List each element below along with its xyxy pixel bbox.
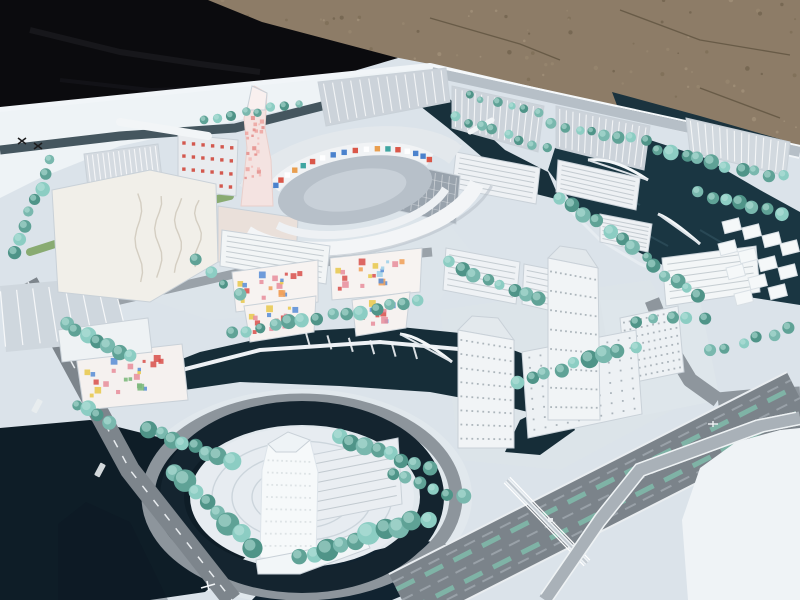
gravel-speckle	[325, 21, 329, 25]
block-right-grid-window	[642, 342, 644, 344]
island-tower-grid-window	[275, 508, 277, 510]
tree-highlight	[413, 296, 419, 302]
tree-highlight	[738, 164, 746, 172]
pink-tower-dots-tile	[253, 123, 257, 127]
tower-1-window	[550, 406, 552, 408]
island-tower-grid-window	[271, 484, 273, 486]
tree-highlight	[281, 102, 286, 107]
block-right-grid-window	[661, 354, 663, 356]
tower-1	[548, 258, 600, 420]
ring-mosaic-tile	[375, 146, 380, 151]
gravel-speckle	[470, 10, 473, 13]
tower-2-window	[477, 397, 479, 399]
block-right-grid-window	[643, 350, 645, 352]
tree-highlight	[477, 97, 481, 101]
slab-towers-right-window	[618, 339, 620, 341]
pink-tower-dots-tile	[256, 150, 260, 154]
block-right-grid-window	[673, 360, 675, 362]
gravel-speckle	[675, 95, 677, 97]
tower-1-window	[585, 370, 587, 372]
gravel-speckle	[357, 19, 360, 22]
block-right-grid-window	[662, 370, 664, 372]
island-tower-grid-window	[290, 521, 292, 523]
slab-towers-right-window	[543, 406, 545, 408]
tree-highlight	[591, 215, 598, 222]
gravel-speckle	[705, 50, 708, 53]
tower-1-window	[580, 369, 582, 371]
red-window-building-red-window	[192, 142, 195, 145]
block-right-grid-window	[663, 321, 665, 323]
tree-highlight	[329, 309, 335, 315]
red-window-building-red-window	[230, 146, 233, 149]
island-tower-grid-window	[305, 545, 307, 547]
gravel-speckle	[633, 43, 635, 45]
tower-1-window	[570, 388, 572, 390]
confetti-block-1-tile	[259, 271, 266, 278]
tree-highlight	[349, 534, 359, 544]
tree-highlight	[373, 444, 381, 452]
confetti-block-2-tile	[381, 266, 384, 269]
tower-2-window	[460, 339, 462, 341]
tree-highlight	[403, 512, 414, 523]
tree-highlight	[254, 109, 259, 114]
island-tower-grid-window	[309, 521, 311, 523]
tree-highlight	[176, 438, 183, 445]
tower-1-window	[575, 331, 577, 333]
tower-1-window	[570, 274, 572, 276]
ring-mosaic-tile	[405, 149, 410, 154]
slab-towers-right-window	[631, 367, 633, 369]
gravel-speckle	[660, 72, 664, 76]
pink-tower-dots-tile	[246, 152, 249, 155]
tree-highlight	[201, 495, 210, 504]
tower-2-window	[482, 356, 484, 358]
island-tower-grid-window	[275, 521, 277, 523]
red-window-building-red-window	[219, 184, 222, 187]
confetti-block-2-tile	[399, 259, 404, 264]
tree-highlight	[210, 448, 220, 458]
confetti-slab-left-tile	[137, 371, 141, 375]
island-tower-grid-window	[304, 473, 306, 475]
gravel-speckle	[402, 22, 405, 25]
tower-1-window	[590, 296, 592, 298]
ring-mosaic-tile	[273, 183, 278, 188]
red-window-building-red-window	[211, 144, 214, 147]
confetti-block-1-tile	[285, 273, 288, 276]
slab-towers-right-window	[633, 398, 635, 400]
tower-1-window	[560, 311, 562, 313]
tower-1-window	[550, 290, 552, 292]
tower-2-window	[499, 345, 501, 347]
tree-highlight	[451, 112, 456, 117]
tower-2-window	[504, 386, 506, 388]
island-tower-grid-window	[266, 508, 268, 510]
block-right-grid-window	[671, 344, 673, 346]
island-tower-grid-window	[310, 545, 312, 547]
slab-towers-right-window	[531, 388, 533, 390]
tower-2-window	[466, 368, 468, 370]
tree-highlight	[681, 313, 688, 320]
tower-1-window	[591, 388, 593, 390]
gravel-speckle	[758, 11, 762, 15]
tower-1-window	[570, 350, 572, 352]
slab-towers-right-window	[630, 357, 632, 359]
gravel-speckle	[725, 79, 729, 83]
tower-2-window	[499, 385, 501, 387]
gravel-speckle	[551, 62, 554, 65]
island-tower-grid-window	[276, 496, 278, 498]
tree-highlight	[605, 226, 613, 234]
tower-2-window	[493, 438, 495, 440]
tree-highlight	[484, 275, 490, 281]
tower-1-window	[590, 370, 592, 372]
tower-1-window	[580, 313, 582, 315]
ribbed-hall-d-rib	[727, 129, 728, 160]
gravel-speckle	[507, 50, 512, 55]
pink-tower-dots-tile	[245, 132, 248, 135]
block-right-grid-window	[679, 367, 681, 369]
gravel-speckle	[323, 19, 325, 21]
tower-2-window	[504, 399, 506, 401]
tree-highlight	[20, 221, 27, 228]
tower-2-window	[466, 396, 468, 398]
tower-2-window	[493, 371, 495, 373]
slab-towers-right-window	[620, 370, 622, 372]
confetti-block-3-tile	[253, 316, 258, 321]
tree-highlight	[125, 350, 132, 357]
ring-mosaic-tile	[278, 177, 283, 182]
tree-highlight	[457, 263, 465, 271]
slab-towers-right-window	[621, 390, 623, 392]
tree-highlight	[705, 345, 712, 352]
tower-2-window	[466, 424, 468, 426]
slab-towers-right-window	[540, 365, 542, 367]
block-right-grid-window	[670, 328, 672, 330]
tree-highlight	[41, 169, 47, 175]
island-tower-grid-window	[295, 497, 297, 499]
tree-highlight	[227, 327, 233, 333]
gravel-speckle	[414, 57, 416, 59]
island-tower-grid-window	[309, 509, 311, 511]
tree-highlight	[73, 401, 79, 407]
tower-1-window	[560, 387, 562, 389]
confetti-block-2-tile	[359, 267, 363, 271]
block-right-grid-window	[673, 368, 675, 370]
tower-2-window	[471, 396, 473, 398]
tower-2-window	[504, 346, 506, 348]
gravel-speckle	[542, 74, 544, 76]
tower-1-window	[565, 311, 567, 313]
tree-highlight	[312, 314, 319, 321]
tower-2-window	[488, 371, 490, 373]
tower-1-window	[576, 407, 578, 409]
tree-highlight	[720, 162, 726, 168]
island-tower-grid-window	[309, 473, 311, 475]
tower-2-window	[471, 382, 473, 384]
island-tower-grid-window	[272, 472, 274, 474]
tree-highlight	[442, 490, 449, 497]
tower-2-window	[493, 425, 495, 427]
tree-highlight	[692, 152, 699, 159]
island-tower-grid-window	[300, 497, 302, 499]
tree-highlight	[46, 155, 51, 160]
tree-highlight	[611, 345, 619, 353]
gravel-speckle	[527, 29, 529, 31]
ring-mosaic-tile	[353, 148, 358, 153]
tower-1-window	[575, 388, 577, 390]
tower-2-window	[460, 367, 462, 369]
gravel-speckle	[531, 51, 535, 55]
ring-mosaic-tile	[285, 172, 290, 177]
island-tower-grid-window	[271, 496, 273, 498]
block-right-grid-window	[644, 358, 646, 360]
island-tower-grid-window	[281, 484, 283, 486]
gravel-speckle	[568, 18, 570, 20]
tree-highlight	[395, 455, 403, 463]
confetti-block-2-tile	[373, 263, 379, 269]
tower-2-window	[477, 410, 479, 412]
tower-1-window	[596, 407, 598, 409]
tower-2-window	[482, 370, 484, 372]
tree-highlight	[101, 339, 109, 347]
tree-highlight	[15, 234, 22, 241]
tree-highlight	[521, 288, 529, 296]
red-window-building-red-window	[192, 155, 195, 158]
red-window-building-red-window	[201, 143, 204, 146]
tower-1-window	[581, 407, 583, 409]
tower-1-window	[570, 331, 572, 333]
gravel-speckle	[741, 89, 744, 92]
island-tower-grid-window	[308, 461, 310, 463]
tree-highlight	[355, 307, 363, 315]
gravel-speckle	[340, 16, 344, 20]
confetti-slab-left-tile	[116, 390, 120, 394]
gravel-speckle	[689, 11, 692, 14]
tower-2-window	[510, 399, 512, 401]
confetti-slab-left-tile	[90, 394, 94, 398]
tree-highlight	[415, 477, 422, 484]
tree-highlight	[319, 540, 331, 552]
tower-2-window	[488, 425, 490, 427]
tower-2-window	[477, 369, 479, 371]
tree-highlight	[494, 98, 499, 103]
tower-1-window	[570, 312, 572, 314]
tree-highlight	[24, 207, 30, 213]
ribbed-hall-b-rib	[462, 90, 463, 128]
tree-highlight	[720, 344, 726, 350]
tower-1-window	[595, 370, 597, 372]
tree-highlight	[357, 439, 367, 449]
slab-towers-right-window	[610, 392, 612, 394]
confetti-block-1-tile	[280, 279, 283, 282]
tower-2-window	[466, 340, 468, 342]
ring-mosaic-tile	[301, 163, 306, 168]
tower-2-window	[499, 412, 501, 414]
island-tower-grid-window	[299, 461, 301, 463]
block-right-grid-window	[659, 330, 661, 332]
tower-2-window	[460, 381, 462, 383]
tree-highlight	[220, 280, 225, 285]
block-right-grid-window	[655, 355, 657, 357]
island-tower-grid-window	[281, 472, 283, 474]
tree-highlight	[705, 155, 713, 163]
tower-1-window	[560, 272, 562, 274]
island-tower-grid-window	[266, 496, 268, 498]
tree-highlight	[190, 440, 198, 448]
tower-2-window	[488, 438, 490, 440]
tree-highlight	[632, 343, 638, 349]
tree-highlight	[665, 146, 674, 155]
pink-tower-dots-tile	[255, 153, 257, 155]
tree-highlight	[201, 116, 206, 121]
gravel-speckle	[525, 56, 529, 60]
red-window-building-red-window	[220, 158, 223, 161]
block-right-grid-window	[671, 336, 673, 338]
tree-highlight	[9, 247, 16, 254]
ring-mosaic-tile	[292, 167, 297, 172]
gravel-speckle	[285, 19, 288, 22]
block-right-grid-window	[657, 315, 659, 317]
tower-2-window	[466, 410, 468, 412]
tower-1-window	[565, 330, 567, 332]
tower-1-window	[570, 407, 572, 409]
gravel-speckle	[691, 71, 693, 73]
confetti-block-4-tile	[381, 317, 388, 324]
block-right-grid-window	[650, 364, 652, 366]
confetti-block-1-tile	[291, 273, 297, 279]
tower-2-window	[482, 343, 484, 345]
island-tower-grid-window	[268, 459, 270, 461]
tree-highlight	[617, 233, 624, 240]
pink-tower-dots-tile	[251, 116, 255, 120]
slab-towers-right-window	[600, 415, 602, 417]
tree-highlight	[746, 202, 753, 209]
block-right-grid-window	[645, 374, 647, 376]
block-right-grid-window	[624, 330, 626, 332]
tower-1-window	[575, 313, 577, 315]
gravel-speckle	[794, 18, 796, 20]
tower-2-window	[482, 384, 484, 386]
island-tower-grid-window	[286, 472, 288, 474]
gravel-speckle	[495, 10, 498, 13]
tower-2-window	[482, 424, 484, 426]
tree-highlight	[243, 108, 248, 113]
gravel-speckle	[630, 70, 633, 73]
tree-highlight	[643, 253, 648, 258]
block-right-grid-window	[678, 359, 680, 361]
tower-1-window	[584, 277, 586, 279]
block-right-grid-window	[656, 363, 658, 365]
island-tower-grid-window	[290, 472, 292, 474]
island-tower-grid-window	[290, 460, 292, 462]
gravel-speckle	[661, 20, 664, 23]
tree-highlight	[308, 548, 317, 557]
tower-2-window	[477, 424, 479, 426]
slab-towers-right-window	[620, 380, 622, 382]
tree-highlight	[561, 124, 566, 129]
tower-1-window	[550, 367, 552, 369]
slab-towers-right-window	[629, 337, 631, 339]
pink-tower-dots-tile	[259, 174, 261, 176]
confetti-block-2-tile	[359, 259, 366, 266]
slab-towers-right-window	[619, 360, 621, 362]
confetti-block-2-tile	[360, 284, 364, 288]
red-window-building-red-window	[211, 157, 214, 160]
pink-tower-dots-tile	[251, 166, 253, 168]
tree-highlight	[267, 103, 272, 108]
tree-highlight	[256, 324, 262, 330]
tree-highlight	[389, 469, 396, 476]
tree-highlight	[37, 183, 45, 191]
tower-1-window	[555, 387, 557, 389]
tree-highlight	[422, 513, 431, 522]
tower-2-window	[499, 438, 501, 440]
tree-highlight	[631, 317, 637, 323]
confetti-block-2-tile	[340, 270, 345, 275]
confetti-block-3-tile	[267, 313, 271, 317]
slab-towers-right-window	[609, 382, 611, 384]
tree-highlight	[465, 120, 470, 125]
tower-2-window	[488, 398, 490, 400]
tree-highlight	[577, 208, 585, 216]
confetti-block-1-tile	[238, 281, 244, 287]
island-tower-grid-window	[310, 533, 312, 535]
red-window-building-red-window	[229, 172, 232, 175]
tree-highlight	[539, 368, 546, 375]
tree-highlight	[555, 193, 562, 200]
tree-highlight	[296, 314, 304, 322]
block-right-grid-window	[646, 325, 648, 327]
tower-1-window	[560, 292, 562, 294]
gravel-speckle	[320, 18, 322, 20]
island-tower-grid-window	[290, 509, 292, 511]
confetti-slab-left-tile	[143, 360, 146, 363]
tower-1-window	[555, 310, 557, 312]
island-tower-grid-window	[305, 521, 307, 523]
pink-tower-dots-tile	[252, 175, 254, 177]
tower-1-window	[565, 406, 567, 408]
gravel-speckle	[780, 3, 783, 6]
tree-highlight	[512, 377, 520, 385]
tower-2-window	[493, 344, 495, 346]
block-right-grid-window	[663, 313, 665, 315]
tower-2-window	[504, 438, 506, 440]
island-tower-grid-window	[286, 460, 288, 462]
ring-mosaic-tile	[320, 155, 325, 160]
gravel-speckle	[646, 50, 648, 52]
island-tower-grid-window	[304, 461, 306, 463]
tree-highlight	[190, 486, 198, 494]
tower-2-window	[488, 411, 490, 413]
tree-highlight	[528, 372, 535, 379]
tree-highlight	[520, 105, 525, 110]
tree-highlight	[495, 281, 501, 287]
confetti-slab-left-tile	[103, 381, 109, 387]
red-window-building-red-window	[182, 154, 185, 157]
block-right-grid-window	[667, 361, 669, 363]
confetti-slab-left-tile	[95, 387, 102, 394]
tree-highlight	[734, 196, 742, 204]
island-tower-grid-window	[295, 533, 297, 535]
tower-1-window	[586, 388, 588, 390]
tower-2-window	[471, 424, 473, 426]
slab-towers-right-window	[556, 424, 558, 426]
tree-highlight	[547, 119, 553, 125]
island-tower-grid-window	[299, 473, 301, 475]
tower-2-window	[471, 369, 473, 371]
tree-highlight	[752, 332, 758, 338]
confetti-slab-left-tile	[129, 377, 133, 381]
